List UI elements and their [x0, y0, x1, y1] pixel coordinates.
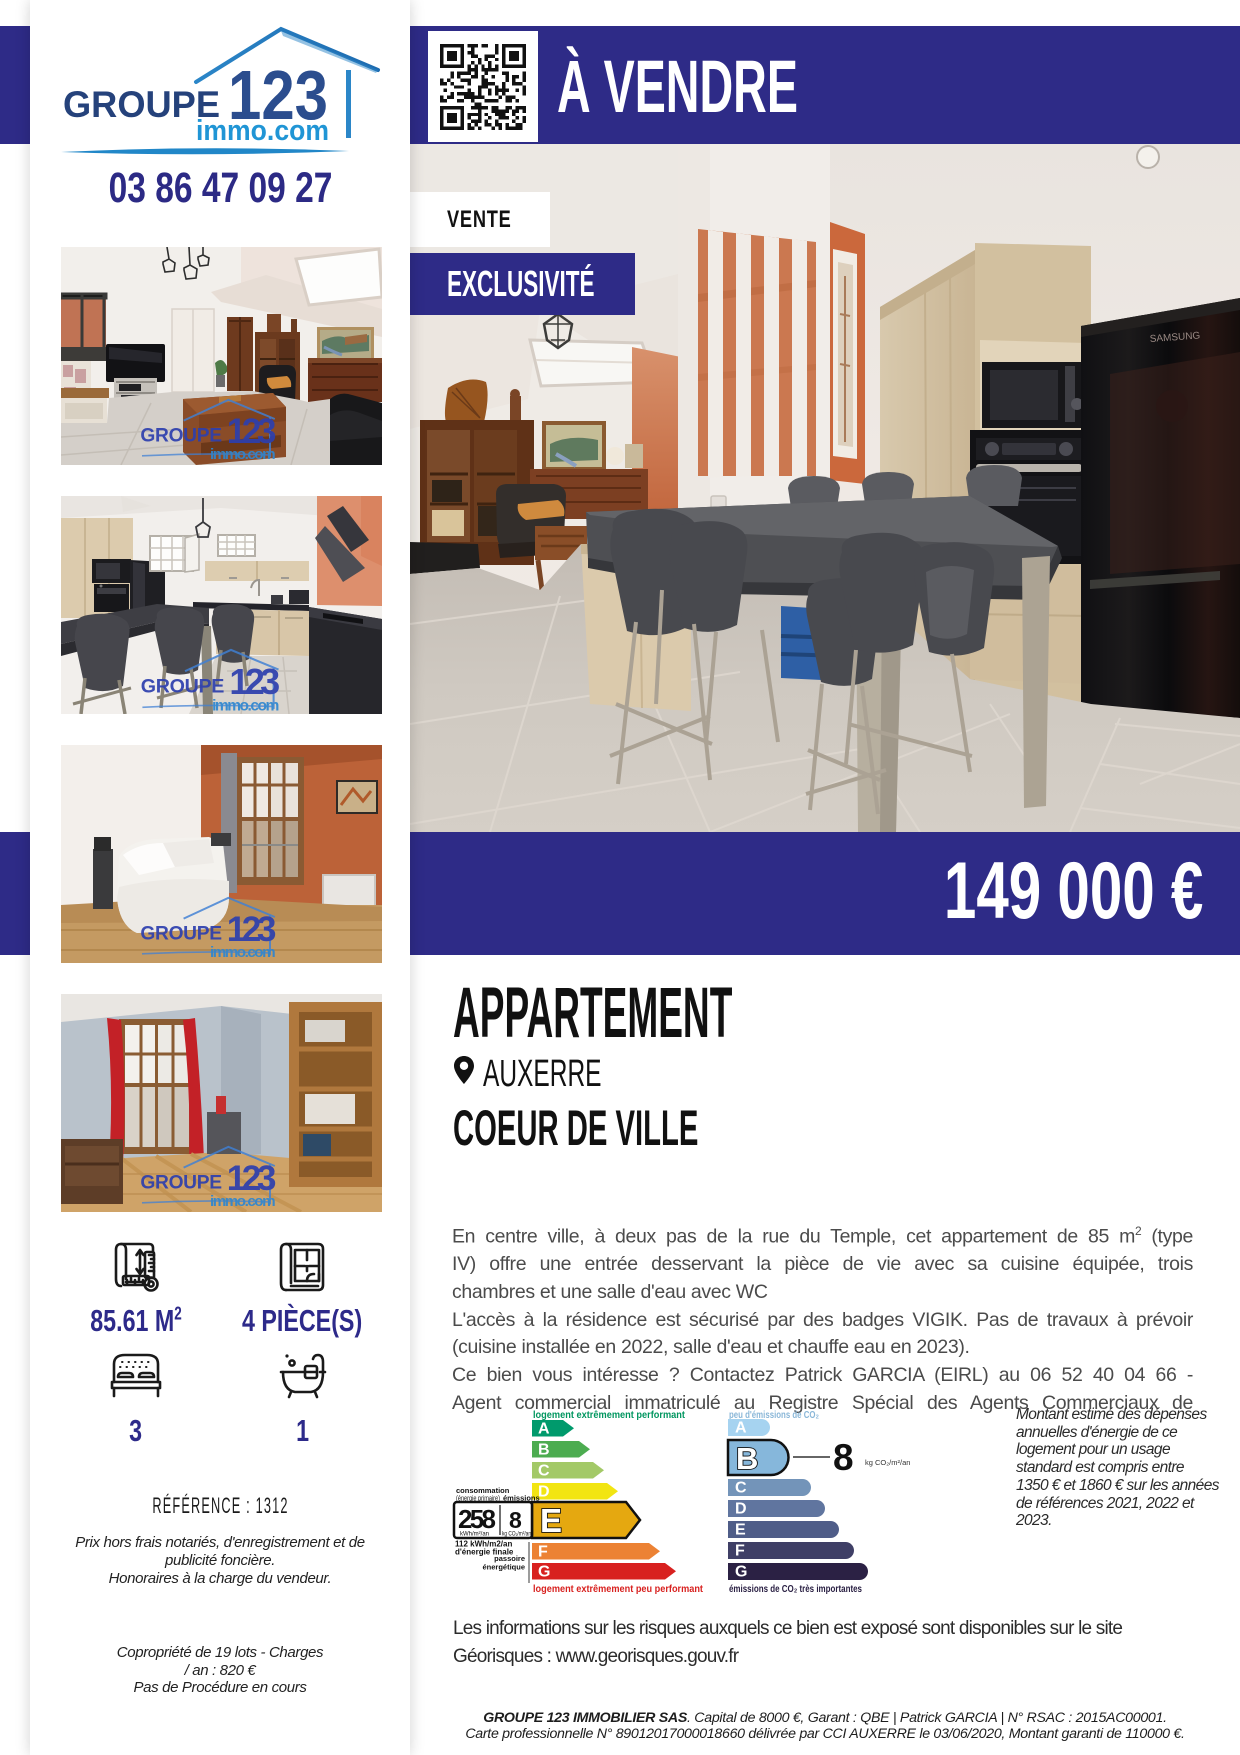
svg-text:GROUPE: GROUPE	[140, 425, 222, 446]
svg-text:G: G	[538, 1564, 550, 1581]
svg-text:D: D	[735, 1501, 747, 1518]
svg-text:8: 8	[509, 1507, 522, 1533]
svg-text:F: F	[538, 1544, 548, 1561]
svg-text:123: 123	[227, 412, 277, 451]
svg-text:GROUPE: GROUPE	[140, 923, 222, 944]
svg-text:123: 123	[227, 1159, 277, 1198]
svg-text:GROUPE: GROUPE	[140, 1172, 222, 1193]
svg-text:émissions de CO₂ très importan: émissions de CO₂ très importantes	[729, 1583, 862, 1595]
svg-text:C: C	[735, 1480, 747, 1497]
svg-text:A: A	[538, 1421, 550, 1438]
svg-text:D: D	[538, 1484, 550, 1501]
svg-text:258: 258	[458, 1504, 496, 1534]
svg-text:A: A	[735, 1420, 747, 1437]
svg-text:123: 123	[227, 910, 277, 949]
svg-text:E: E	[540, 1502, 562, 1539]
svg-text:kg CO₂/m²/an: kg CO₂/m²/an	[865, 1458, 910, 1467]
svg-text:B: B	[736, 1441, 758, 1476]
svg-text:énergétique: énergétique	[482, 1563, 525, 1572]
svg-text:8: 8	[833, 1437, 854, 1478]
svg-text:immo.com: immo.com	[210, 944, 276, 961]
svg-text:immo.com: immo.com	[196, 115, 329, 147]
svg-text:123: 123	[229, 661, 280, 702]
svg-text:kWh/m²/an: kWh/m²/an	[460, 1532, 489, 1538]
svg-text:(énergie primaire): (énergie primaire)	[456, 1496, 500, 1503]
svg-text:kg CO₂/m²/an: kg CO₂/m²/an	[502, 1532, 531, 1538]
svg-text:logement extrêmement peu perfo: logement extrêmement peu performant	[533, 1583, 703, 1595]
svg-text:immo.com: immo.com	[210, 1193, 276, 1210]
svg-text:B: B	[538, 1442, 550, 1459]
svg-text:immo.com: immo.com	[210, 446, 276, 463]
svg-text:G: G	[735, 1564, 747, 1581]
svg-text:immo.com: immo.com	[212, 698, 279, 714]
svg-text:émissions: émissions	[503, 1494, 540, 1503]
svg-text:E: E	[735, 1522, 746, 1539]
svg-text:consommation: consommation	[456, 1486, 510, 1495]
svg-text:logement extrêmement performan: logement extrêmement performant	[533, 1409, 685, 1421]
svg-text:GROUPE: GROUPE	[141, 676, 225, 698]
svg-text:C: C	[538, 1463, 550, 1480]
svg-text:F: F	[735, 1543, 745, 1560]
